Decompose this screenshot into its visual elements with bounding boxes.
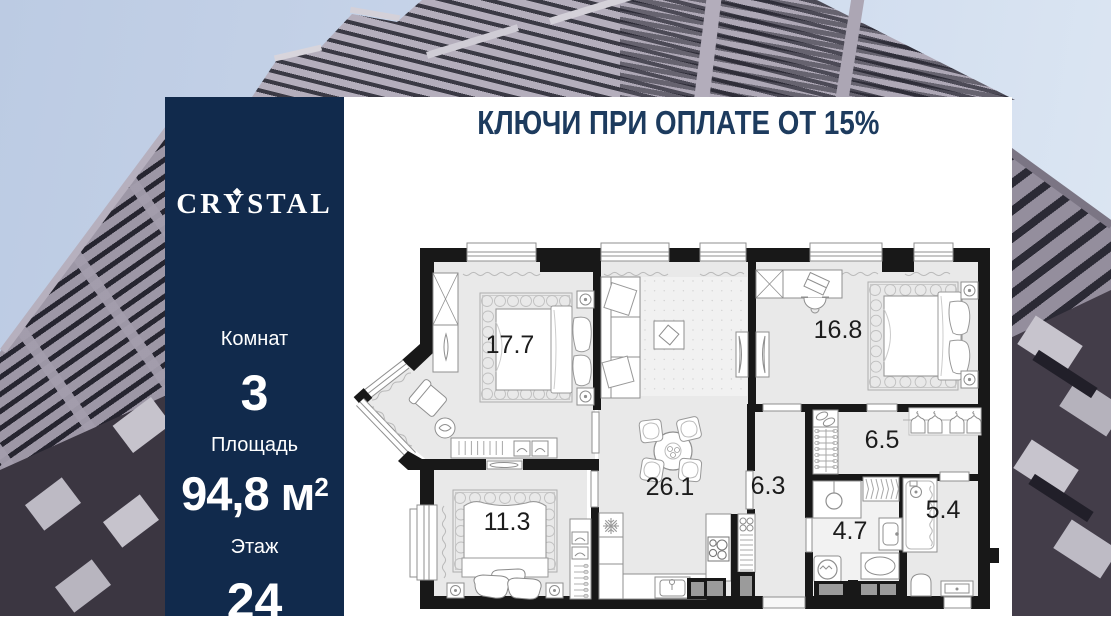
svg-text:26.1: 26.1 [646, 473, 695, 501]
svg-text:6.3: 6.3 [751, 472, 786, 500]
svg-text:5.4: 5.4 [926, 496, 961, 524]
svg-text:16.8: 16.8 [814, 316, 863, 344]
svg-text:11.3: 11.3 [484, 508, 531, 536]
svg-text:17.7: 17.7 [486, 331, 535, 359]
svg-text:4.7: 4.7 [833, 517, 868, 545]
svg-text:6.5: 6.5 [865, 426, 900, 454]
